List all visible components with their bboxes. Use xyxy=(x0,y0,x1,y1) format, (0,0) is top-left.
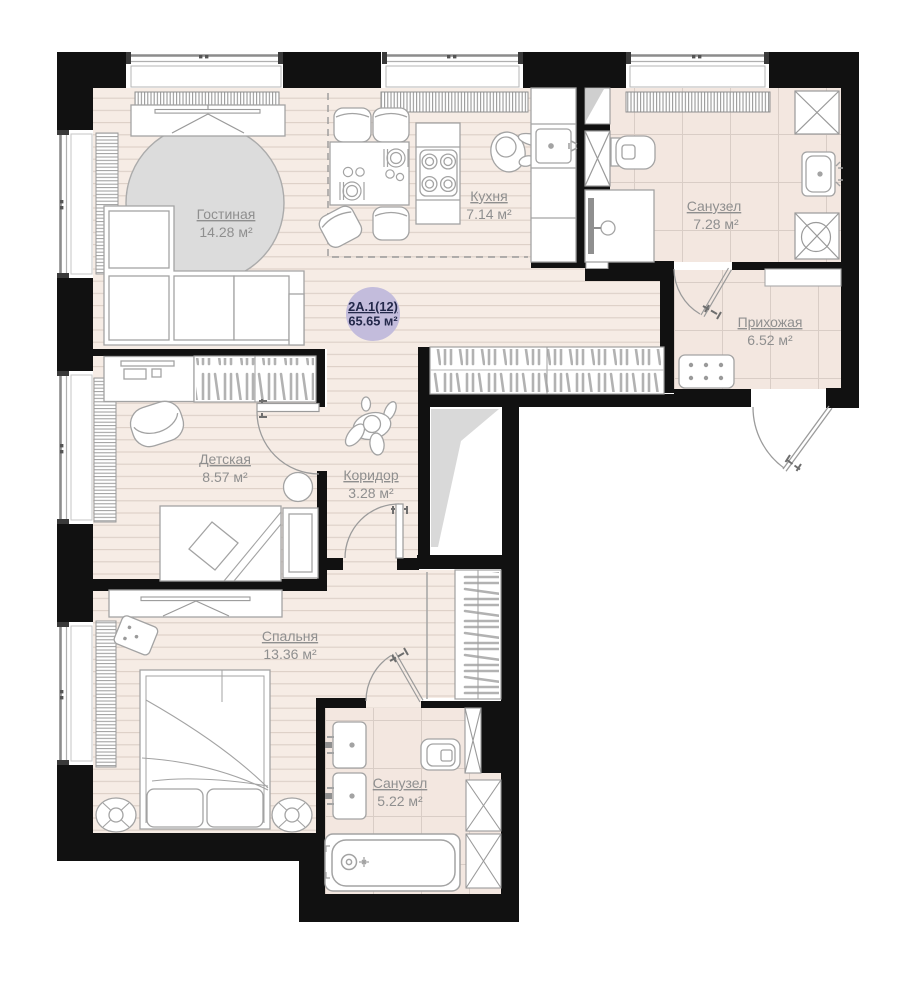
svg-text:3.28 м²: 3.28 м² xyxy=(348,485,394,501)
svg-text:6.52 м²: 6.52 м² xyxy=(747,332,793,348)
svg-text:5.22 м²: 5.22 м² xyxy=(377,793,423,809)
svg-text:8.57 м²: 8.57 м² xyxy=(202,469,248,485)
svg-text:14.28 м²: 14.28 м² xyxy=(199,224,253,240)
svg-text:Гостиная: Гостиная xyxy=(197,206,256,222)
svg-text:Санузел: Санузел xyxy=(687,198,742,214)
svg-text:7.28 м²: 7.28 м² xyxy=(693,216,739,232)
svg-text:65.65 м²: 65.65 м² xyxy=(348,314,397,329)
svg-text:13.36 м²: 13.36 м² xyxy=(263,646,317,662)
svg-text:Детская: Детская xyxy=(199,451,251,467)
svg-text:2А.1(12): 2А.1(12) xyxy=(348,299,398,314)
svg-text:Спальня: Спальня xyxy=(262,628,318,644)
svg-text:Прихожая: Прихожая xyxy=(738,314,803,330)
svg-text:Санузел: Санузел xyxy=(373,775,428,791)
svg-text:Кухня: Кухня xyxy=(470,188,507,204)
svg-text:Коридор: Коридор xyxy=(343,467,399,483)
svg-text:7.14 м²: 7.14 м² xyxy=(466,206,512,222)
